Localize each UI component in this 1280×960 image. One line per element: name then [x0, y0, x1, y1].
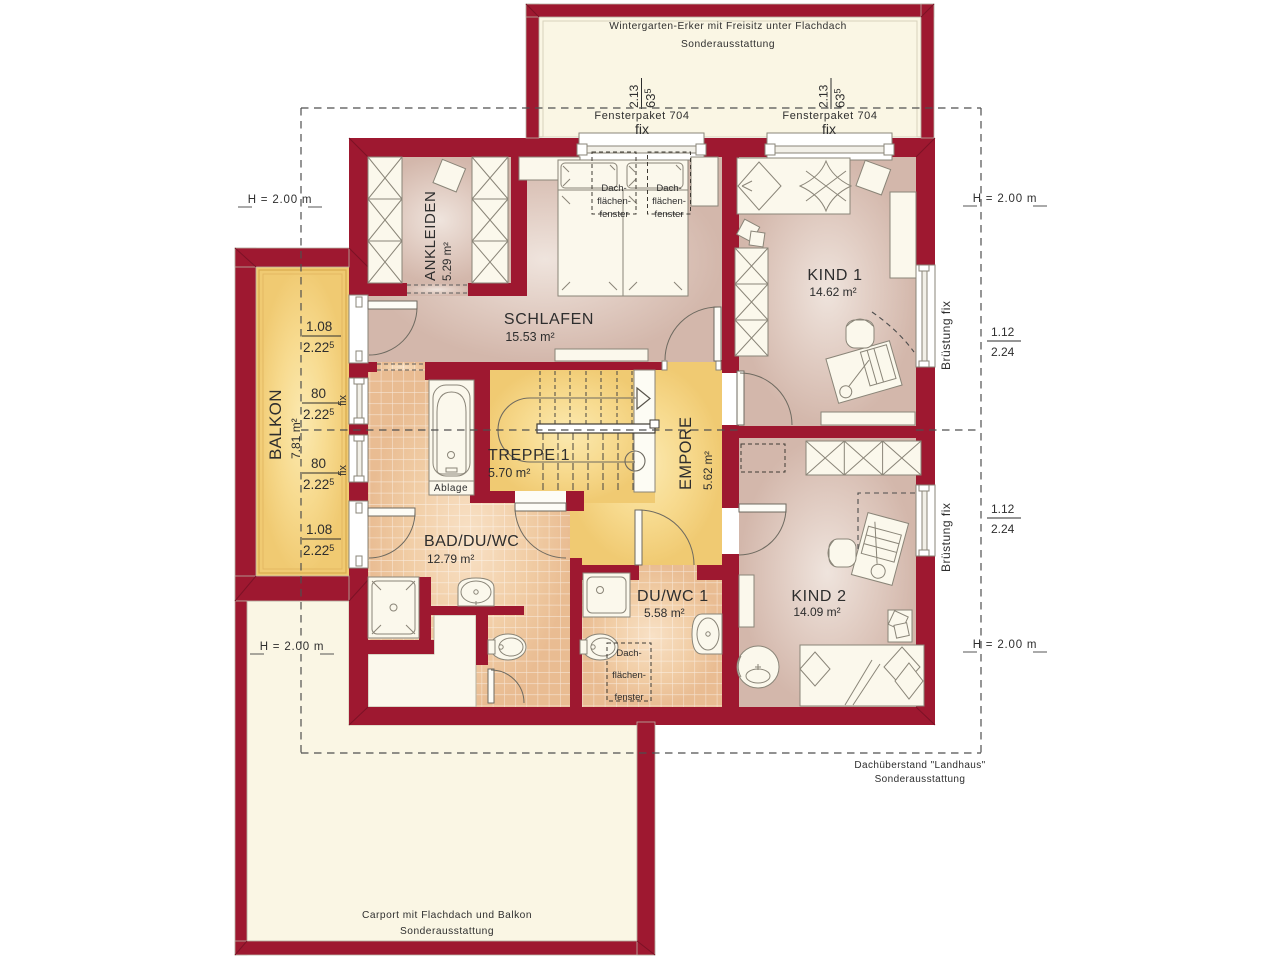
svg-text:ANKLEIDEN: ANKLEIDEN — [422, 191, 439, 281]
svg-text:Carport mit Flachdach und Balk: Carport mit Flachdach und Balkon — [362, 910, 532, 921]
svg-text:Wintergarten-Erker mit Freisit: Wintergarten-Erker mit Freisitz unter Fl… — [609, 21, 847, 32]
svg-text:Brüstung fix: Brüstung fix — [939, 503, 953, 572]
svg-text:H = 2.00 m: H = 2.00 m — [260, 641, 325, 653]
svg-text:80: 80 — [311, 456, 326, 471]
svg-text:14.09 m²: 14.09 m² — [793, 605, 840, 619]
svg-text:Sonderausstattung: Sonderausstattung — [400, 926, 494, 937]
svg-text:EMPORE: EMPORE — [677, 417, 695, 490]
svg-text:fix: fix — [337, 465, 349, 477]
svg-text:Dach-: Dach- — [601, 183, 626, 194]
svg-text:flächen-: flächen- — [612, 670, 646, 681]
svg-text:fix: fix — [337, 395, 349, 407]
svg-text:flächen-: flächen- — [652, 196, 686, 207]
svg-text:fenster: fenster — [654, 209, 683, 220]
svg-text:fix: fix — [635, 121, 649, 137]
svg-text:12.79 m²: 12.79 m² — [427, 552, 474, 566]
svg-text:15.53 m²: 15.53 m² — [505, 330, 554, 344]
svg-text:H = 2.00 m: H = 2.00 m — [973, 639, 1038, 651]
svg-text:Brüstung fix: Brüstung fix — [939, 301, 953, 370]
svg-text:1.08: 1.08 — [306, 522, 332, 537]
svg-text:flächen-: flächen- — [597, 196, 631, 207]
svg-text:Sonderausstattung: Sonderausstattung — [681, 39, 775, 50]
svg-text:SCHLAFEN: SCHLAFEN — [504, 311, 594, 328]
svg-text:1.12: 1.12 — [991, 325, 1015, 339]
svg-text:2.13: 2.13 — [627, 84, 641, 108]
svg-text:fenster: fenster — [599, 209, 628, 220]
svg-text:5.62 m²: 5.62 m² — [703, 451, 715, 490]
svg-text:fenster: fenster — [614, 692, 643, 703]
svg-text:Dach-: Dach- — [616, 648, 641, 659]
svg-text:80: 80 — [311, 386, 326, 401]
svg-text:KIND 2: KIND 2 — [791, 588, 846, 605]
svg-text:1.12: 1.12 — [991, 502, 1015, 516]
svg-text:2.13: 2.13 — [817, 84, 831, 108]
svg-text:5.29 m²: 5.29 m² — [442, 242, 454, 281]
svg-text:Ablage: Ablage — [434, 483, 468, 494]
svg-text:KIND 1: KIND 1 — [807, 267, 862, 284]
svg-text:5.70 m²: 5.70 m² — [488, 466, 530, 480]
svg-text:14.62 m²: 14.62 m² — [809, 285, 856, 299]
svg-text:Dachüberstand "Landhaus": Dachüberstand "Landhaus" — [854, 760, 985, 771]
svg-text:H = 2.00 m: H = 2.00 m — [248, 194, 313, 206]
svg-text:DU/WC 1: DU/WC 1 — [637, 588, 709, 605]
svg-text:5.58 m²: 5.58 m² — [644, 606, 685, 620]
svg-text:H = 2.00 m: H = 2.00 m — [973, 193, 1038, 205]
svg-text:2.24: 2.24 — [991, 345, 1015, 359]
svg-text:TREPPE 1: TREPPE 1 — [488, 447, 570, 464]
svg-text:fix: fix — [822, 121, 836, 137]
svg-text:1.08: 1.08 — [306, 319, 332, 334]
svg-text:2.24: 2.24 — [991, 522, 1015, 536]
svg-text:BAD/DU/WC: BAD/DU/WC — [424, 533, 519, 550]
svg-text:BALKON: BALKON — [266, 389, 285, 460]
svg-text:Dach-: Dach- — [656, 183, 681, 194]
svg-text:Sonderausstattung: Sonderausstattung — [875, 774, 966, 785]
